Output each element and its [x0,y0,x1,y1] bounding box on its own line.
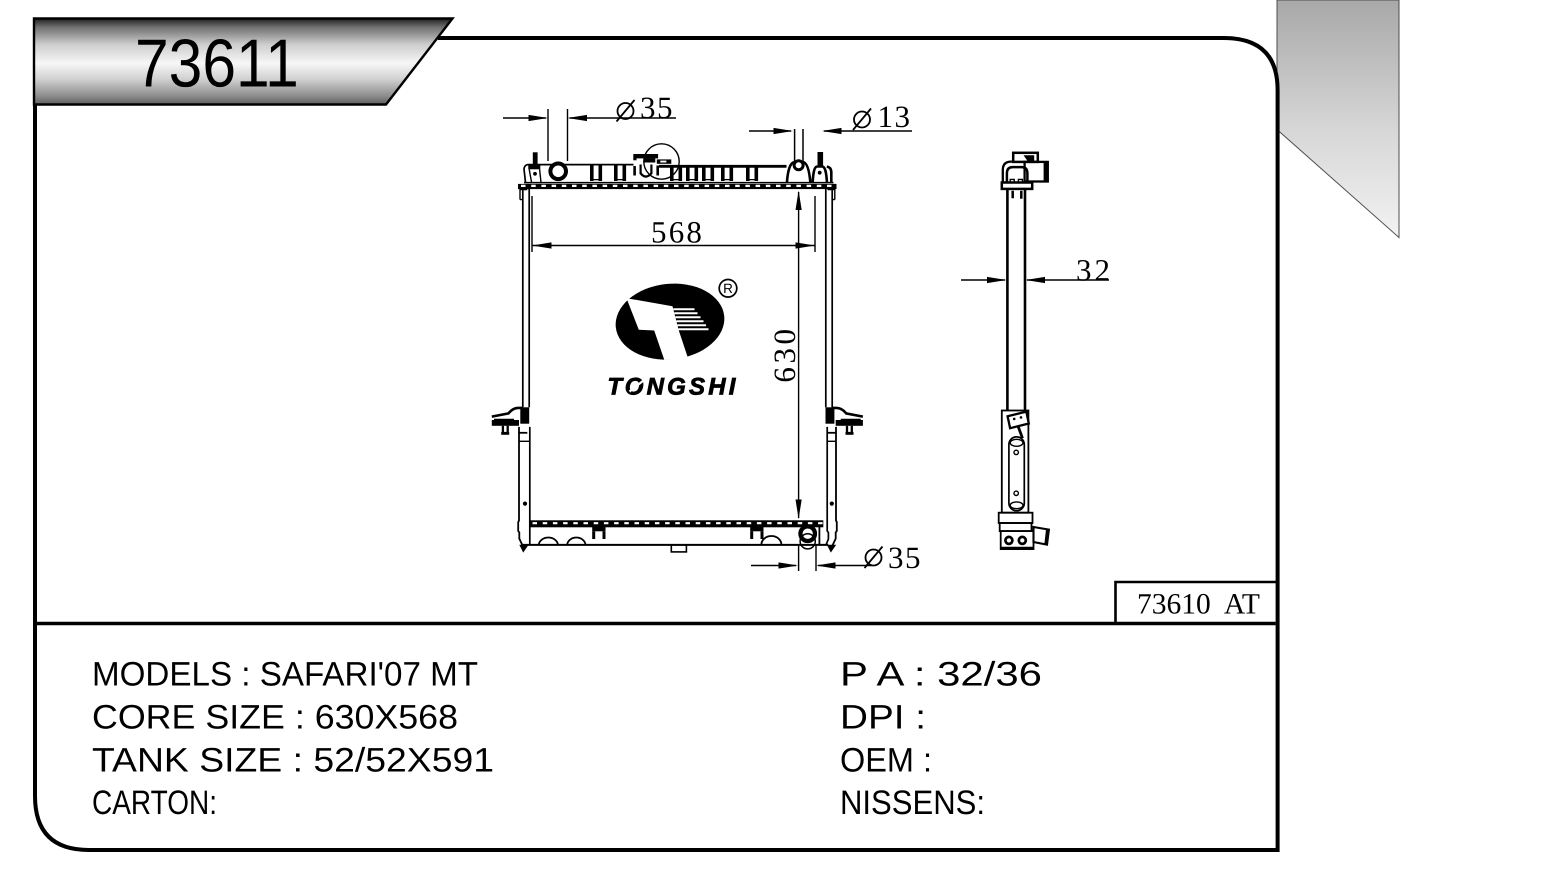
svg-text:73610 AT: 73610 AT [1137,589,1260,621]
svg-text:P A : 32/36: P A : 32/36 [840,656,1042,694]
svg-text:CARTON:: CARTON: [92,784,217,822]
svg-text:13: 13 [878,99,912,134]
svg-text:TANK SIZE : 52/52X591: TANK SIZE : 52/52X591 [92,742,494,780]
svg-text:CORE SIZE : 630X568: CORE SIZE : 630X568 [92,699,458,737]
svg-text:NISSENS:: NISSENS: [840,784,985,822]
svg-text:35: 35 [640,90,674,125]
svg-text:32: 32 [1076,253,1113,288]
svg-text:MODELS : SAFARI'07 MT: MODELS : SAFARI'07 MT [92,656,478,694]
svg-text:568: 568 [651,215,704,250]
svg-text:73611: 73611 [135,26,299,102]
svg-text:35: 35 [888,540,922,575]
svg-text:TONGSHI: TONGSHI [607,374,738,401]
svg-text:OEM :: OEM : [840,742,932,780]
svg-text:R: R [723,281,733,296]
svg-text:630: 630 [767,325,802,382]
svg-text:DPI :: DPI : [840,699,926,737]
